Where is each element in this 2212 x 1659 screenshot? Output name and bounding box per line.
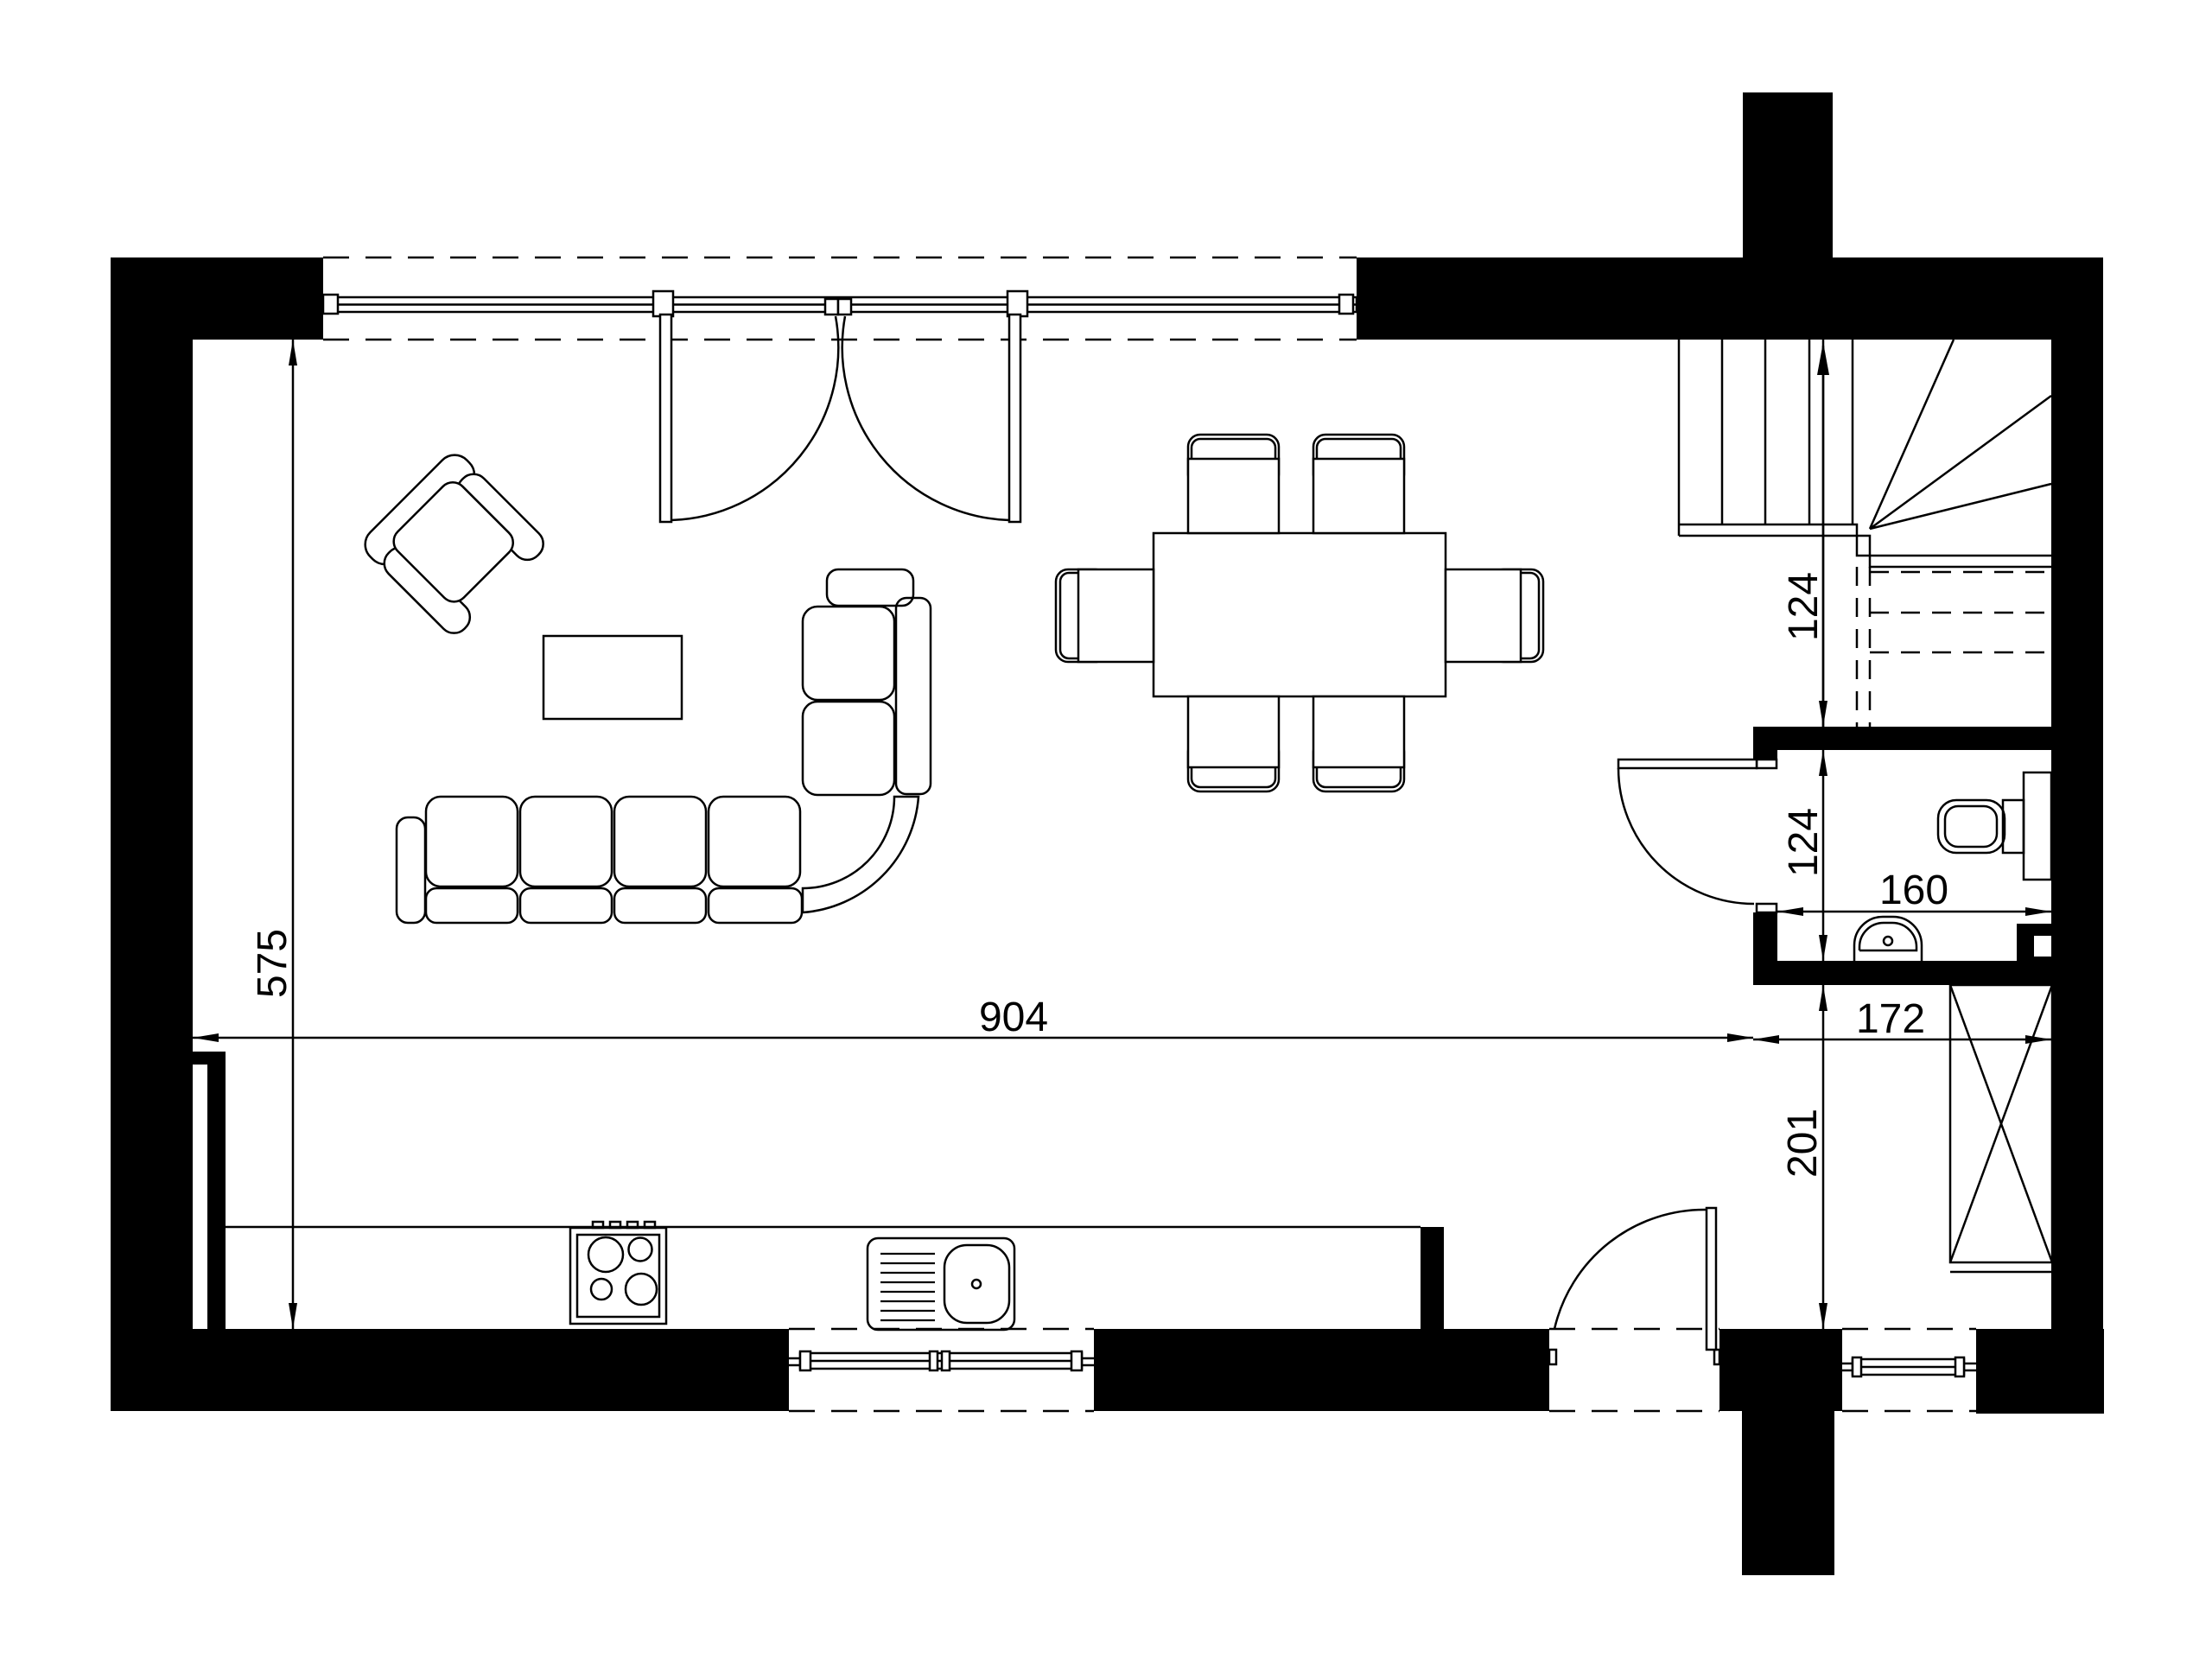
svg-text:201: 201: [1780, 1109, 1826, 1178]
svg-text:124: 124: [1781, 808, 1827, 877]
svg-text:124: 124: [1781, 572, 1827, 641]
svg-text:575: 575: [250, 929, 296, 998]
svg-text:172: 172: [1856, 996, 1925, 1042]
svg-text:160: 160: [1879, 868, 1948, 913]
svg-text:904: 904: [979, 995, 1048, 1040]
